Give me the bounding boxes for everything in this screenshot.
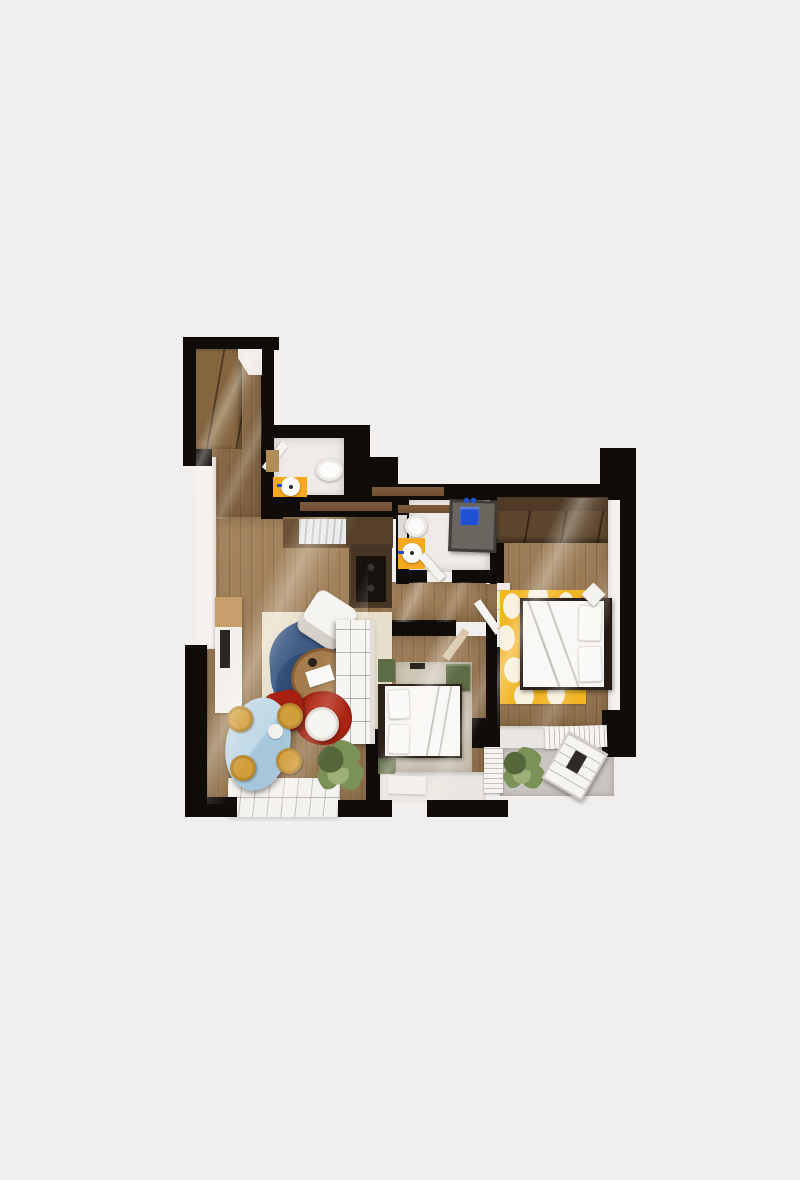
dark-object	[410, 663, 425, 669]
white-side-chair	[305, 707, 339, 741]
kitchen-cooktop	[356, 556, 386, 602]
pillow	[387, 688, 411, 719]
wall-entry-step	[183, 449, 212, 466]
bathroom-sink	[402, 543, 422, 563]
wall-balcony-divider	[470, 718, 500, 748]
wall-right-exterior	[620, 448, 636, 714]
wall-entry-right	[261, 349, 274, 497]
table-plate	[268, 724, 283, 739]
wall-guest-wc-right	[344, 437, 370, 497]
tv-screen	[220, 630, 230, 668]
wall-bottom-bedroom-center	[427, 800, 508, 817]
floorplan-canvas	[0, 0, 800, 1180]
master-wardrobe-shelf	[497, 497, 608, 511]
bedroom-center-bed	[378, 684, 462, 758]
wall-bottom-middle	[338, 800, 392, 817]
headboard	[604, 598, 612, 690]
living-plant	[316, 740, 364, 796]
pillow	[387, 723, 411, 754]
tv-console-wood-top	[215, 597, 242, 627]
bathroom-shower-head	[463, 497, 477, 504]
green-cushion	[378, 659, 395, 682]
balcony-plant	[502, 747, 545, 793]
dining-stool	[230, 755, 256, 781]
wall-cap	[398, 505, 456, 513]
entry-wardrobe	[196, 349, 242, 449]
wall-right-step	[602, 710, 636, 757]
wall-cap	[300, 502, 392, 511]
dining-stool	[227, 706, 253, 732]
kitchen-sink-area	[299, 519, 347, 544]
guest-wc-shelf	[266, 450, 279, 472]
guest-wc-toilet	[316, 459, 343, 481]
master-wardrobe	[497, 497, 608, 543]
master-bed	[520, 598, 612, 690]
duvet	[523, 601, 579, 687]
coffee-table-cup	[308, 658, 317, 667]
bathroom-toilet	[405, 515, 427, 537]
kitchen-counter-dark-section	[346, 517, 393, 546]
wall-bathroom-bottom-left	[396, 570, 427, 583]
wall-bottom-left-horizontal	[185, 797, 237, 817]
wall-bottom-left-vertical	[185, 645, 207, 817]
wall-cap	[372, 487, 444, 496]
duvet	[411, 686, 460, 756]
pillow	[577, 605, 602, 642]
balcony-railing	[484, 747, 503, 793]
page-background: { "scene": { "type": "apartment-floor-pl…	[0, 0, 800, 1180]
guest-wc-sink	[281, 477, 300, 496]
dining-stool	[277, 703, 303, 729]
pillow	[577, 646, 602, 683]
living-window-wall	[196, 457, 216, 649]
wall-entry-left	[183, 337, 197, 459]
tv-console	[215, 597, 242, 713]
bathroom-faucet	[398, 551, 404, 554]
bathroom-shower-tray	[460, 507, 479, 525]
guest-wc-faucet	[277, 484, 282, 487]
bedroom-center-white-mat	[388, 775, 427, 794]
dining-stool	[276, 748, 302, 774]
